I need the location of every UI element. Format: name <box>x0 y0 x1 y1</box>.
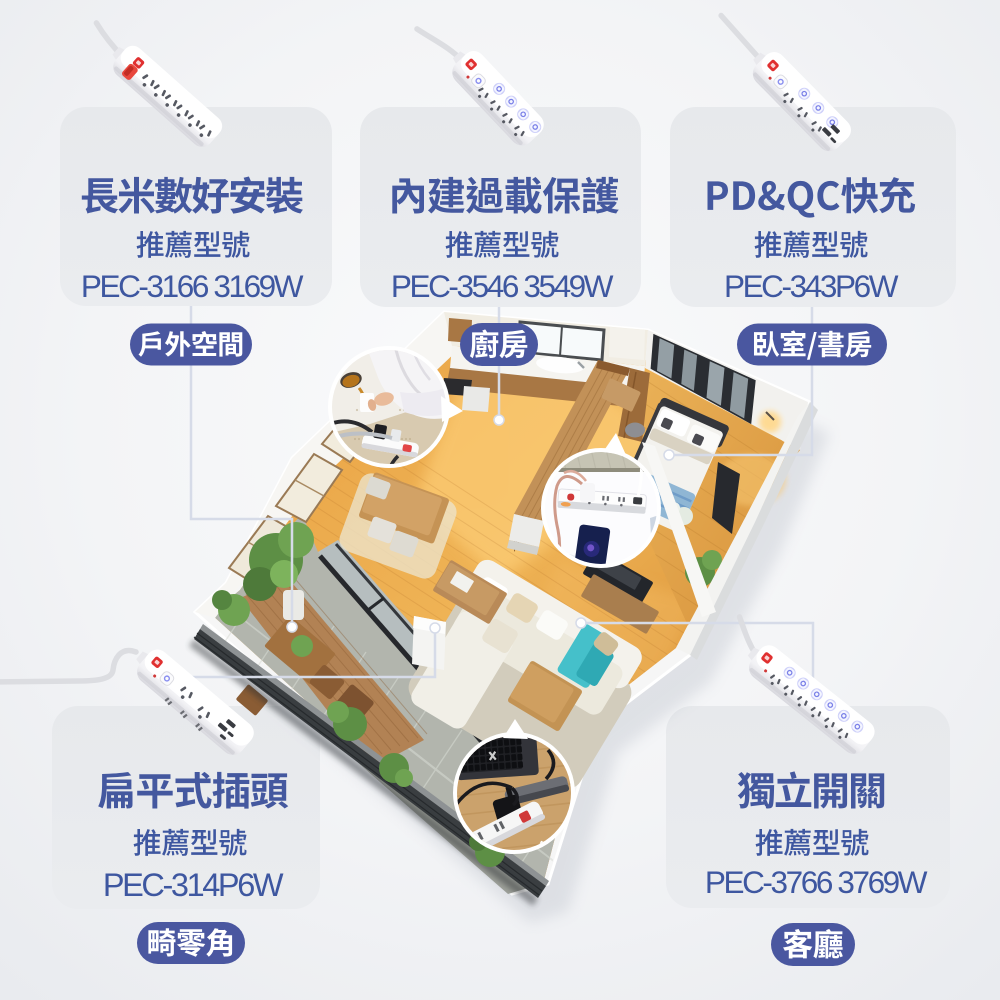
svg-text:PEC-3166 3169W: PEC-3166 3169W <box>81 268 304 304</box>
svg-text:PEC-343P6W: PEC-343P6W <box>724 268 899 304</box>
svg-text:PEC-314P6W: PEC-314P6W <box>103 867 284 903</box>
svg-text:PEC-3546 3549W: PEC-3546 3549W <box>391 268 614 304</box>
svg-text:PEC-3766 3769W: PEC-3766 3769W <box>705 864 928 900</box>
